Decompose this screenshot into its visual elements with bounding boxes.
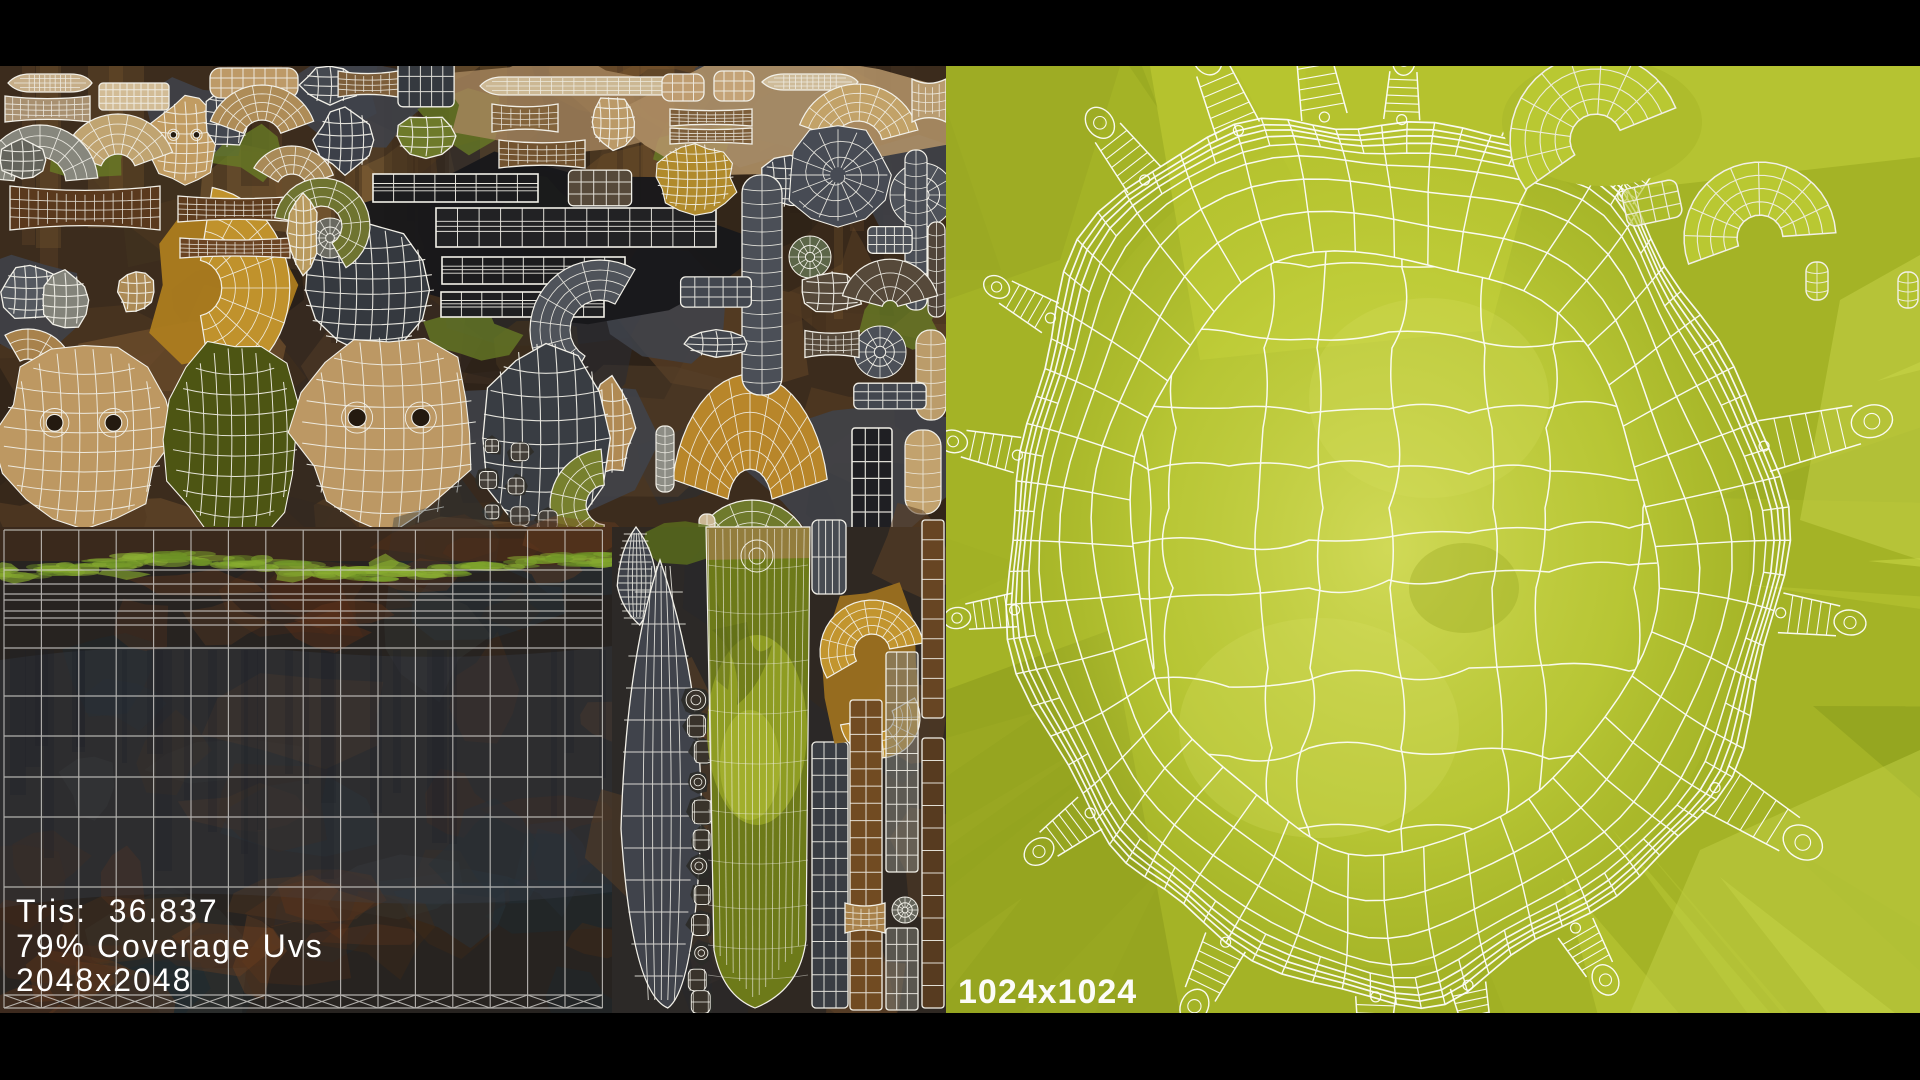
svg-text:1024x1024: 1024x1024 [958,973,1137,1011]
svg-text:79% Coverage Uvs: 79% Coverage Uvs [16,928,324,964]
svg-text:2048x2048: 2048x2048 [16,962,192,998]
svg-text:Tris: 36.837: Tris: 36.837 [16,893,219,929]
